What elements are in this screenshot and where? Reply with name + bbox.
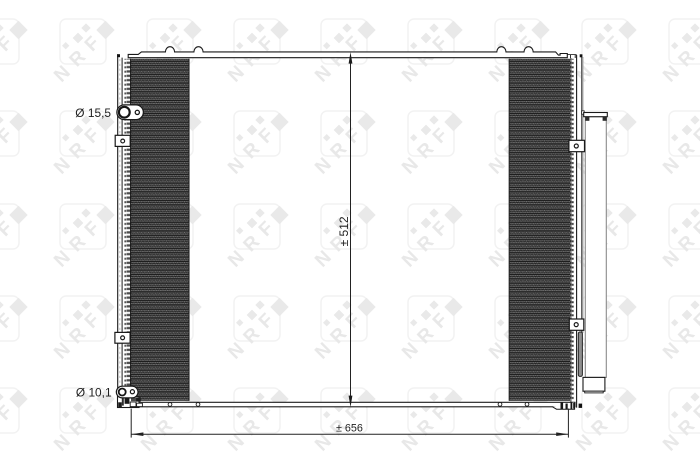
svg-text:± 512: ± 512 — [337, 216, 351, 246]
svg-text:± 656: ± 656 — [336, 423, 363, 435]
svg-text:Ø 15,5: Ø 15,5 — [75, 106, 111, 120]
svg-text:Ø 10,1: Ø 10,1 — [76, 385, 112, 399]
